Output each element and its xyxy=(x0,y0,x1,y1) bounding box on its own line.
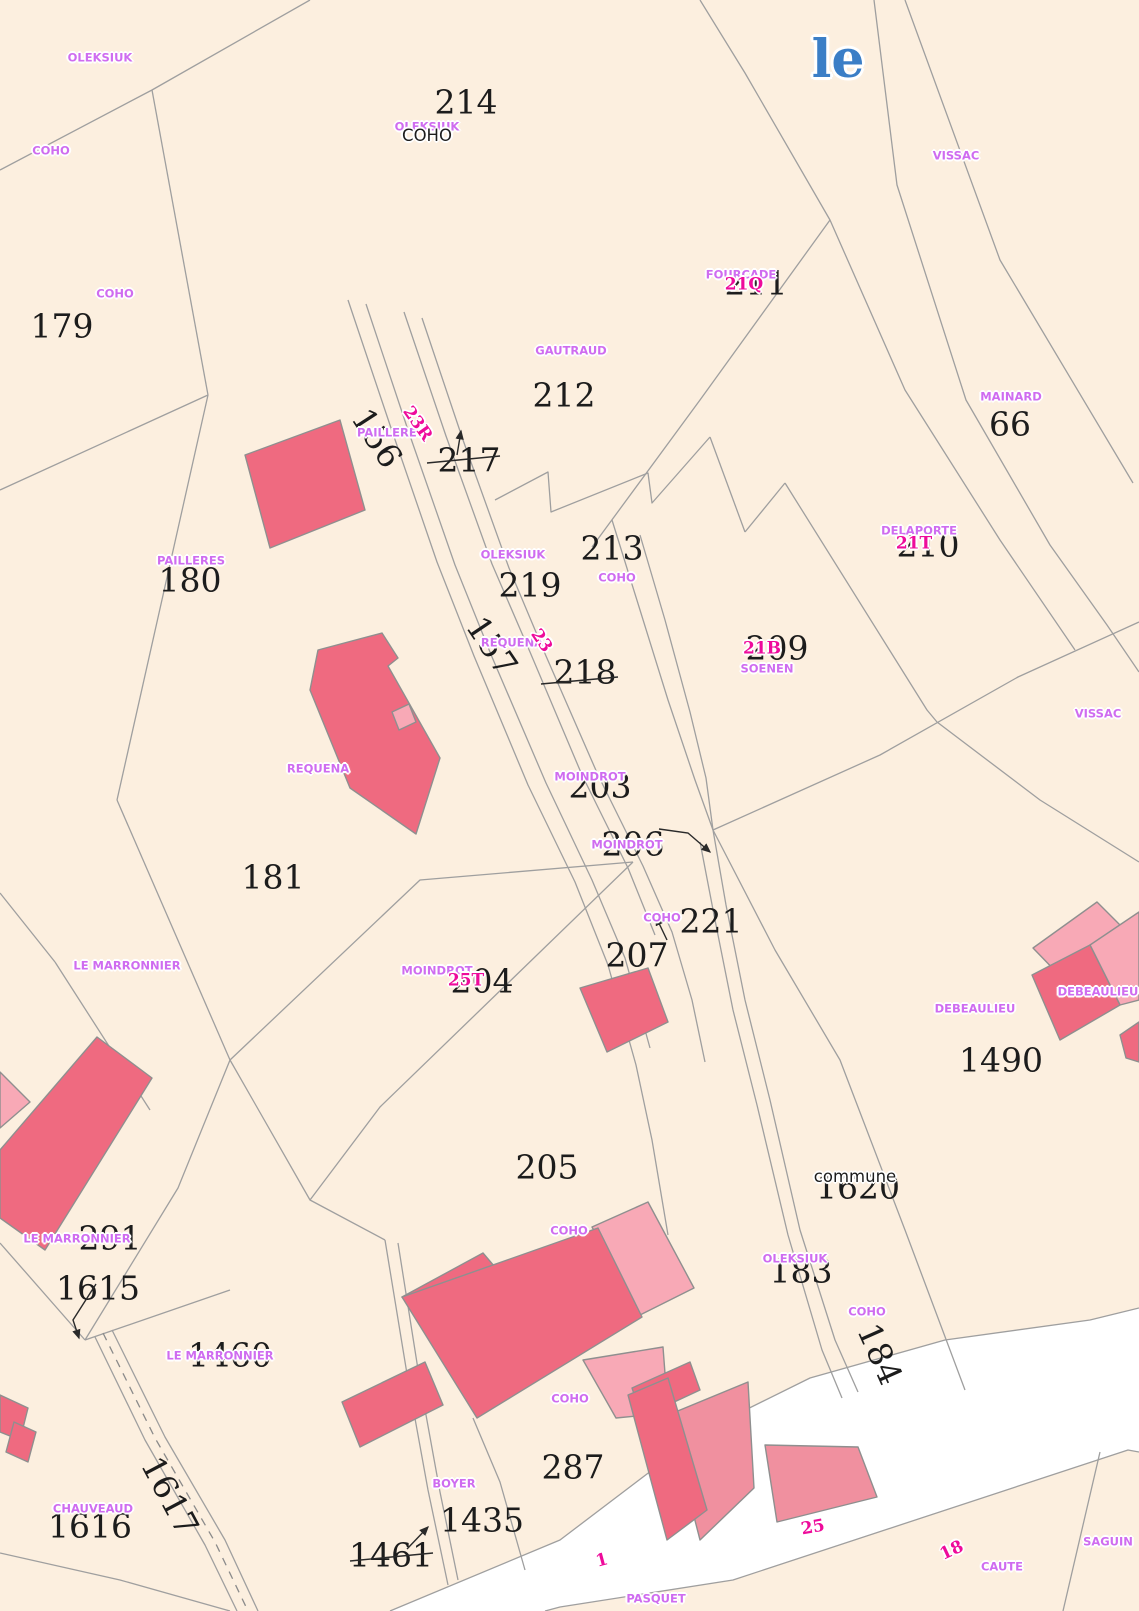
building xyxy=(0,1037,152,1250)
cadastral-map-canvas[interactable]: 2141792112126621715618021321921020915721… xyxy=(0,0,1139,1611)
building xyxy=(1120,1022,1139,1062)
building xyxy=(342,1362,443,1447)
map-geometry-layer xyxy=(0,0,1139,1611)
building xyxy=(310,633,440,834)
building xyxy=(580,968,668,1052)
building xyxy=(245,420,365,548)
path-dashed-line xyxy=(103,1333,248,1611)
